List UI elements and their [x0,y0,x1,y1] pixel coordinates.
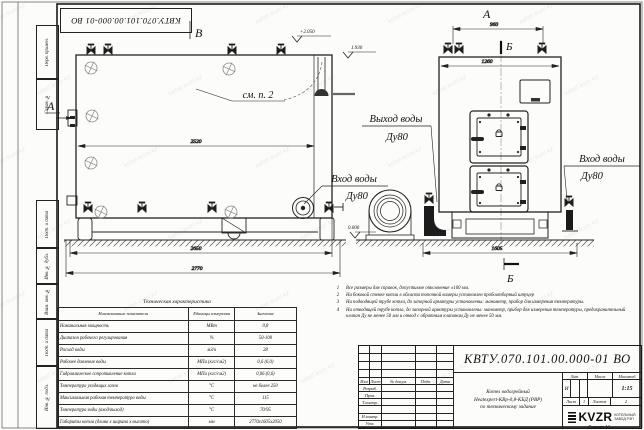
frame-column-cell: Инв. № подл. [36,365,59,429]
table-cell: °С [189,380,234,392]
table-cell: % [189,332,234,344]
part-name: Котел водогрейный Heatexpert-КВр-0,8-КБД… [454,373,563,428]
valve-icon [444,44,452,54]
note-item: 3На подводящей трубе котла, до запорной … [330,300,636,306]
table-cell: 0,6 (6,0) [234,356,296,368]
valve-icon [104,45,112,55]
center-mark-icon [82,59,101,78]
col-header: № докум. [382,378,416,385]
table-cell: 115 [234,392,296,404]
table-cell: Рабочее давление воды [58,356,189,368]
tech-table-header-row: Наименование показателя Единицы измерени… [58,307,297,320]
table-cell: 28 [234,344,296,356]
org-line: ЗАВОД РЭП [614,417,635,421]
col-header: Подп. [416,378,437,385]
tech-table: Наименование показателя Единицы измерени… [57,307,297,429]
tech-table-header: Единицы измерения [189,307,234,320]
dim-label: 1605 [492,246,503,252]
logo-text: KVZR [578,410,612,424]
center-mark-icon [220,60,239,79]
role-label: Т.контр. [359,399,382,406]
dim-label: 960 [490,22,499,28]
frame-column-cell: Взам. инв. № [36,283,59,320]
revision-header-row: Изм Лист № докум. Подп. Дата [359,378,453,385]
col-header: Дата [437,378,453,385]
table-cell: °С [189,392,234,404]
frame-column-label: Справ. № [45,94,50,114]
tech-table-header: Наименование показателя [58,307,189,320]
dimensions: 2520 2650 2770 960 1260 1605 [66,22,577,277]
valve-icon [138,203,146,213]
frame-column-cell: Перв. примен. [36,25,59,80]
valve-icon [538,44,546,54]
water-inlet-front-label: Вход воды [579,154,625,165]
frame-column-label: Инв. № дубл. [45,253,50,280]
role-label: Пров. [359,392,382,399]
water-outlet-dn: Ду80 [385,132,409,143]
table-row: Номинальная мощностьМВт0,8 [58,320,297,332]
lit-value: И [563,380,571,398]
center-mark-icon [83,107,102,126]
table-cell: мм [189,416,234,428]
valve-icon [425,194,433,204]
section-label-b-top: Б [505,41,513,53]
frame-column-label: Инв. № подл. [45,384,50,411]
mass-header: Масса [588,373,613,380]
water-inlet-side-label: Вход воды [331,174,377,185]
table-cell: МПа (кгс/см2) [189,368,234,380]
valve-icon [87,45,95,55]
col-header: Лист [370,378,382,385]
note-item: 4На отводящей трубе котла, до запорной а… [330,308,636,320]
view-label-a-top: А [482,7,491,21]
table-cell: м3/ч [189,344,234,356]
tech-characteristics: Техническая характеристика Наименование … [57,299,297,429]
table-row: Габариты котла (длина х ширина х высота)… [58,416,297,428]
table-cell: 2770х1605х2050 [234,416,296,428]
table-cell: Диапазон рабочего регулирования [58,332,189,344]
tech-table-header: Значение [234,307,296,320]
format-label: Формат А3 [588,424,610,429]
table-cell: МВт [189,320,234,332]
role-label: Н.контр. [359,414,382,421]
frame-column-label: Подп. и дата [45,211,50,238]
role-label: Утв. [359,421,382,428]
valve-icon [565,197,573,207]
upper-door [470,111,528,163]
boiler-front-view [356,40,594,247]
dim-label: 2770 [192,266,203,272]
dim-label: 1260 [482,59,493,65]
frame-column-cell: Инв. № дубл. [36,247,59,285]
part-name-line: Котел водогрейный [486,389,529,397]
see-note-label: см. п. 2 [243,90,274,101]
scale-header: Масштаб [613,373,641,380]
table-cell: МПа (кгс/см2) [189,356,234,368]
table-cell: 70/95 [234,404,296,416]
sheets-label: Листов [589,398,611,406]
valve-icon [455,44,463,54]
table-cell: Расход воды [58,344,189,356]
role-label [359,406,382,413]
table-cell: 0,8 [234,320,296,332]
notes-list: 1Все размеры для справок, допустимое отк… [330,286,636,321]
valve-icon [228,45,236,55]
dim-label: 2520 [191,139,202,145]
center-mark-icon [82,154,101,173]
mass-value [588,380,613,398]
note-item: 1Все размеры для справок, допустимое отк… [330,286,636,292]
frame-column-cell: Справ. № [36,78,59,130]
frame-column-label: Подп. и дата [45,329,50,356]
col-header: Изм [359,378,370,385]
elevation-label: 1.930 [351,46,363,51]
water-inlet-front-dn: Ду80 [580,171,604,182]
logo-bars-icon [568,412,576,423]
water-inlet-side-dn: Ду80 [345,191,369,202]
table-cell: не более 250 [234,380,296,392]
blower-fan [366,190,414,240]
elevation-label: +2.050 [300,30,315,35]
corner-stamp-number: КВТУ.070.101.00.000-01 ВО [71,16,181,26]
sheet-value: 1 [580,398,589,406]
sheets-value: 2 [611,398,641,406]
view-label-b: В [195,26,203,40]
valve-icon [208,203,216,213]
frame-column-cell: Подп. и дата [36,200,59,249]
table-row: Диапазон рабочего регулирования%50-100 [58,332,297,344]
tech-table-title: Техническая характеристика [57,299,297,305]
elevation-label: 0.000 [348,226,360,231]
tech-table-body: Номинальная мощностьМВт0,8Диапазон рабоч… [58,320,297,428]
table-cell: Температура воды (вход/выход) [58,404,189,416]
org-name: КОТЕЛЬНЫЙ ЗАВОД РЭП [614,413,635,422]
frame-column-label: Перв. примен. [45,38,50,66]
table-row: Гидравлическое сопротивление котлаМПа (к… [58,368,297,380]
table-cell: Температура уходящих газов [58,380,189,392]
water-outlet-label: Выход воды [370,114,423,125]
note-item: 2На боковой стенке котла в области топоч… [330,293,636,299]
table-cell: 50-100 [234,332,296,344]
table-row: Температура уходящих газов°Сне более 250 [58,380,297,392]
table-row: Рабочее давление водыМПа (кгс/см2)0,6 (6… [58,356,297,368]
table-cell: °С [189,404,234,416]
table-cell: 0,06 (0,6) [234,368,296,380]
valve-icon [277,45,285,55]
lit-header: Лит. [563,373,588,380]
role-label: Разраб. [359,385,382,392]
table-cell: Гидравлическое сопротивление котла [58,368,189,380]
dim-label: 2650 [191,246,202,252]
frame-column-label: Взам. инв. № [45,288,50,315]
table-row: Температура воды (вход/выход)°С70/95 [58,404,297,416]
table-row: Расход водым3/ч28 [58,344,297,356]
part-name-line: по техническому задание [480,404,536,412]
scale-value: 1:15 [613,380,641,398]
corner-stamp: КВТУ.070.101.00.000-01 ВО [60,8,192,33]
drawing-sheet: 2520 2650 2770 960 1260 1605 В А А [0,0,644,430]
section-label-b-bottom: Б [506,273,514,285]
table-row: Максимальная рабочая температура воды°С1… [58,392,297,404]
doc-number: КВТУ.070.101.00.000-01 ВО [454,346,641,373]
table-cell: Максимальная рабочая температура воды [58,392,189,404]
title-block: Изм Лист № докум. Подп. Дата Разраб. Про… [358,345,642,429]
table-cell: Габариты котла (длина х ширина х высота) [58,416,189,428]
title-block-revision-grid: Изм Лист № докум. Подп. Дата Разраб. Про… [359,346,453,428]
sheet-label: Лист [563,398,580,406]
valve-icon [84,203,92,213]
lower-door [470,166,528,212]
table-cell: Номинальная мощность [58,320,189,332]
frame-column-cell: Подп. и дата [36,318,59,367]
